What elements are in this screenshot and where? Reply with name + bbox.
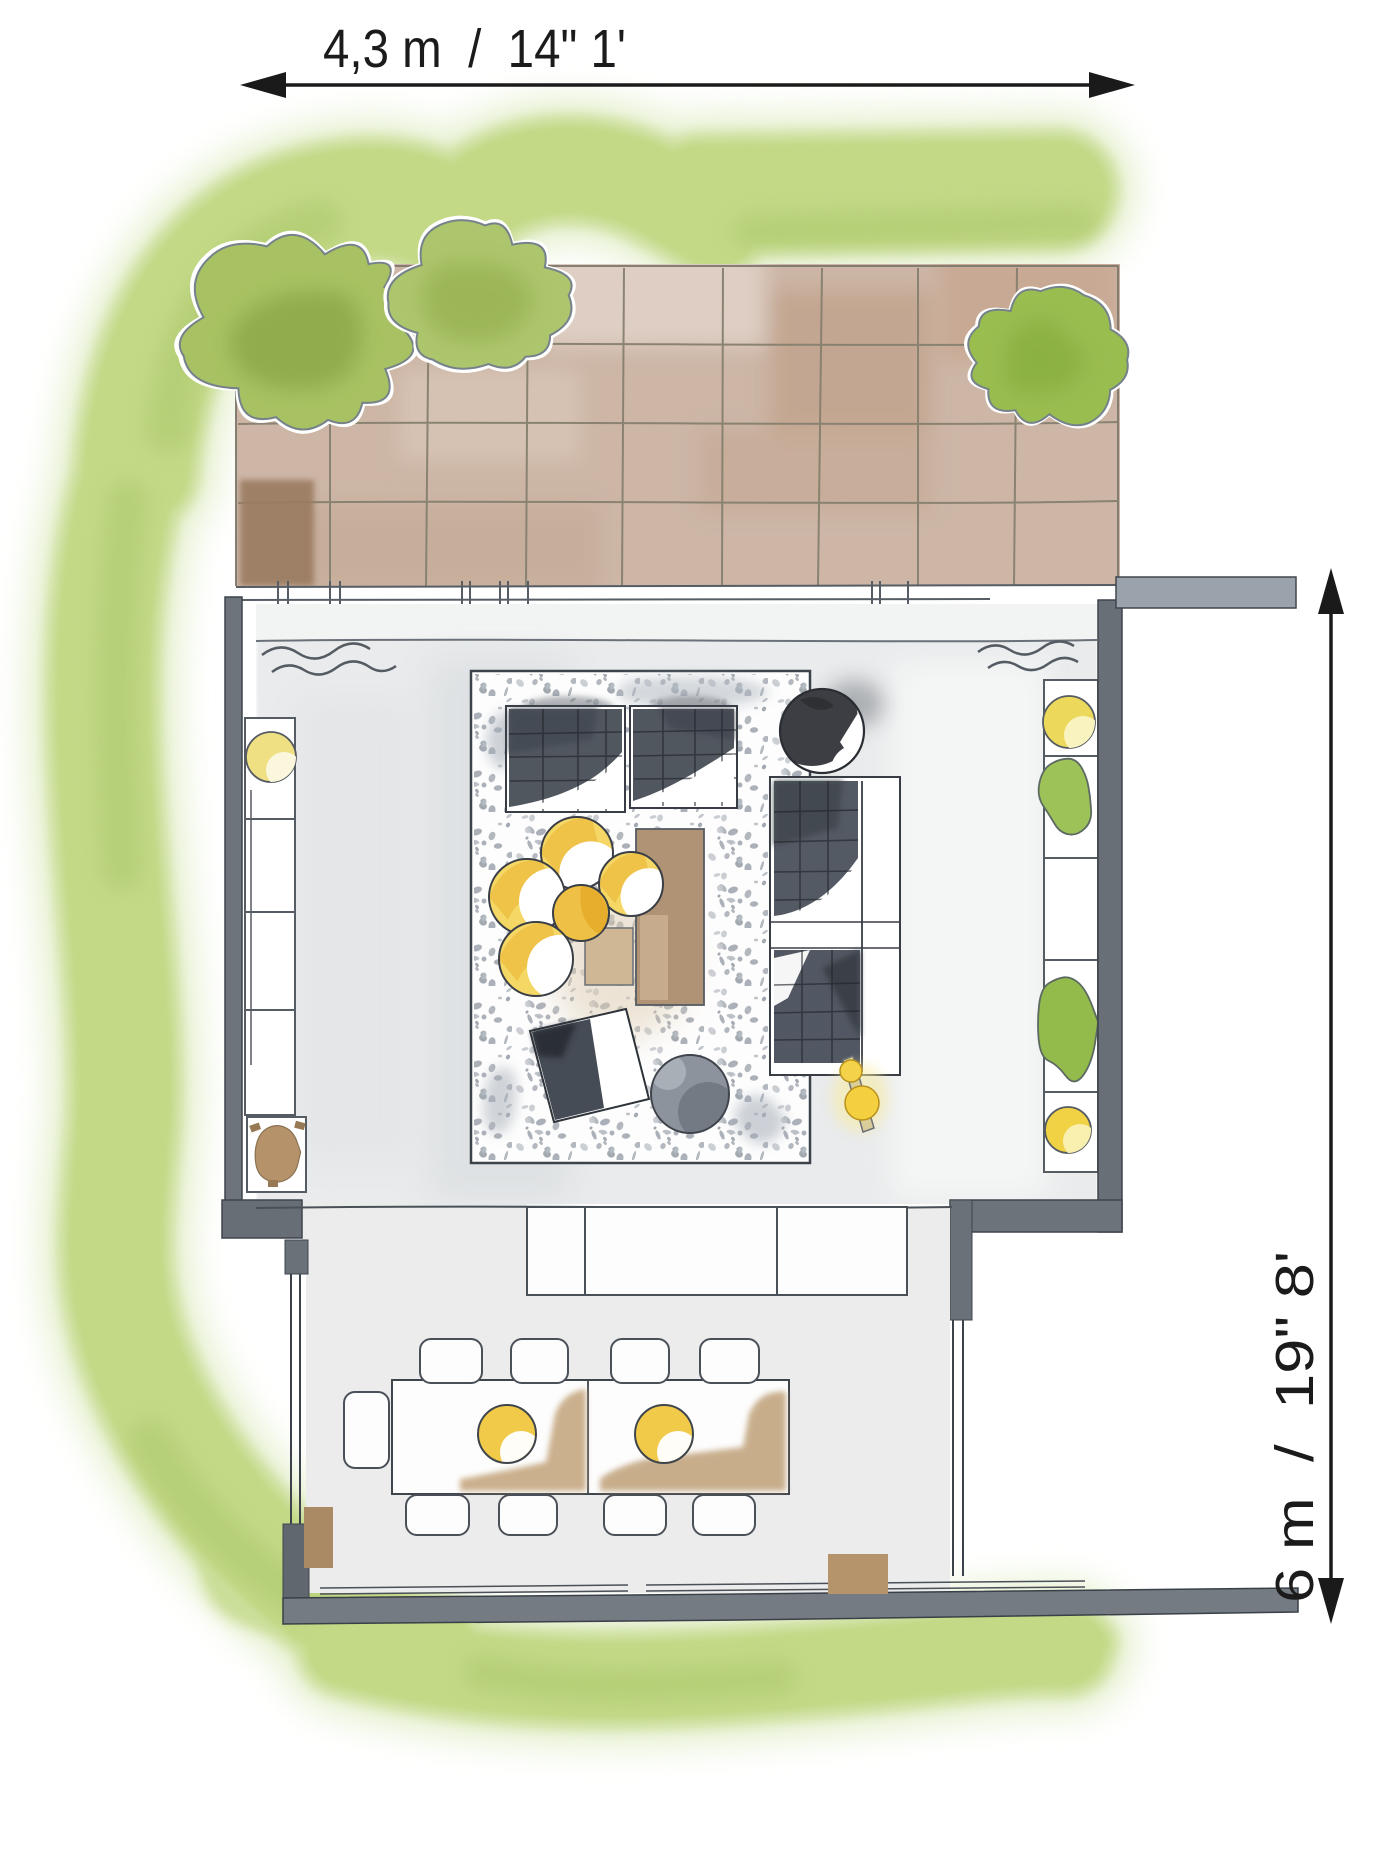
svg-text:4,3 m / 14" 1': 4,3 m / 14" 1' [323, 19, 626, 79]
svg-text:6 m / 19" 8': 6 m / 19" 8' [1265, 1251, 1325, 1603]
